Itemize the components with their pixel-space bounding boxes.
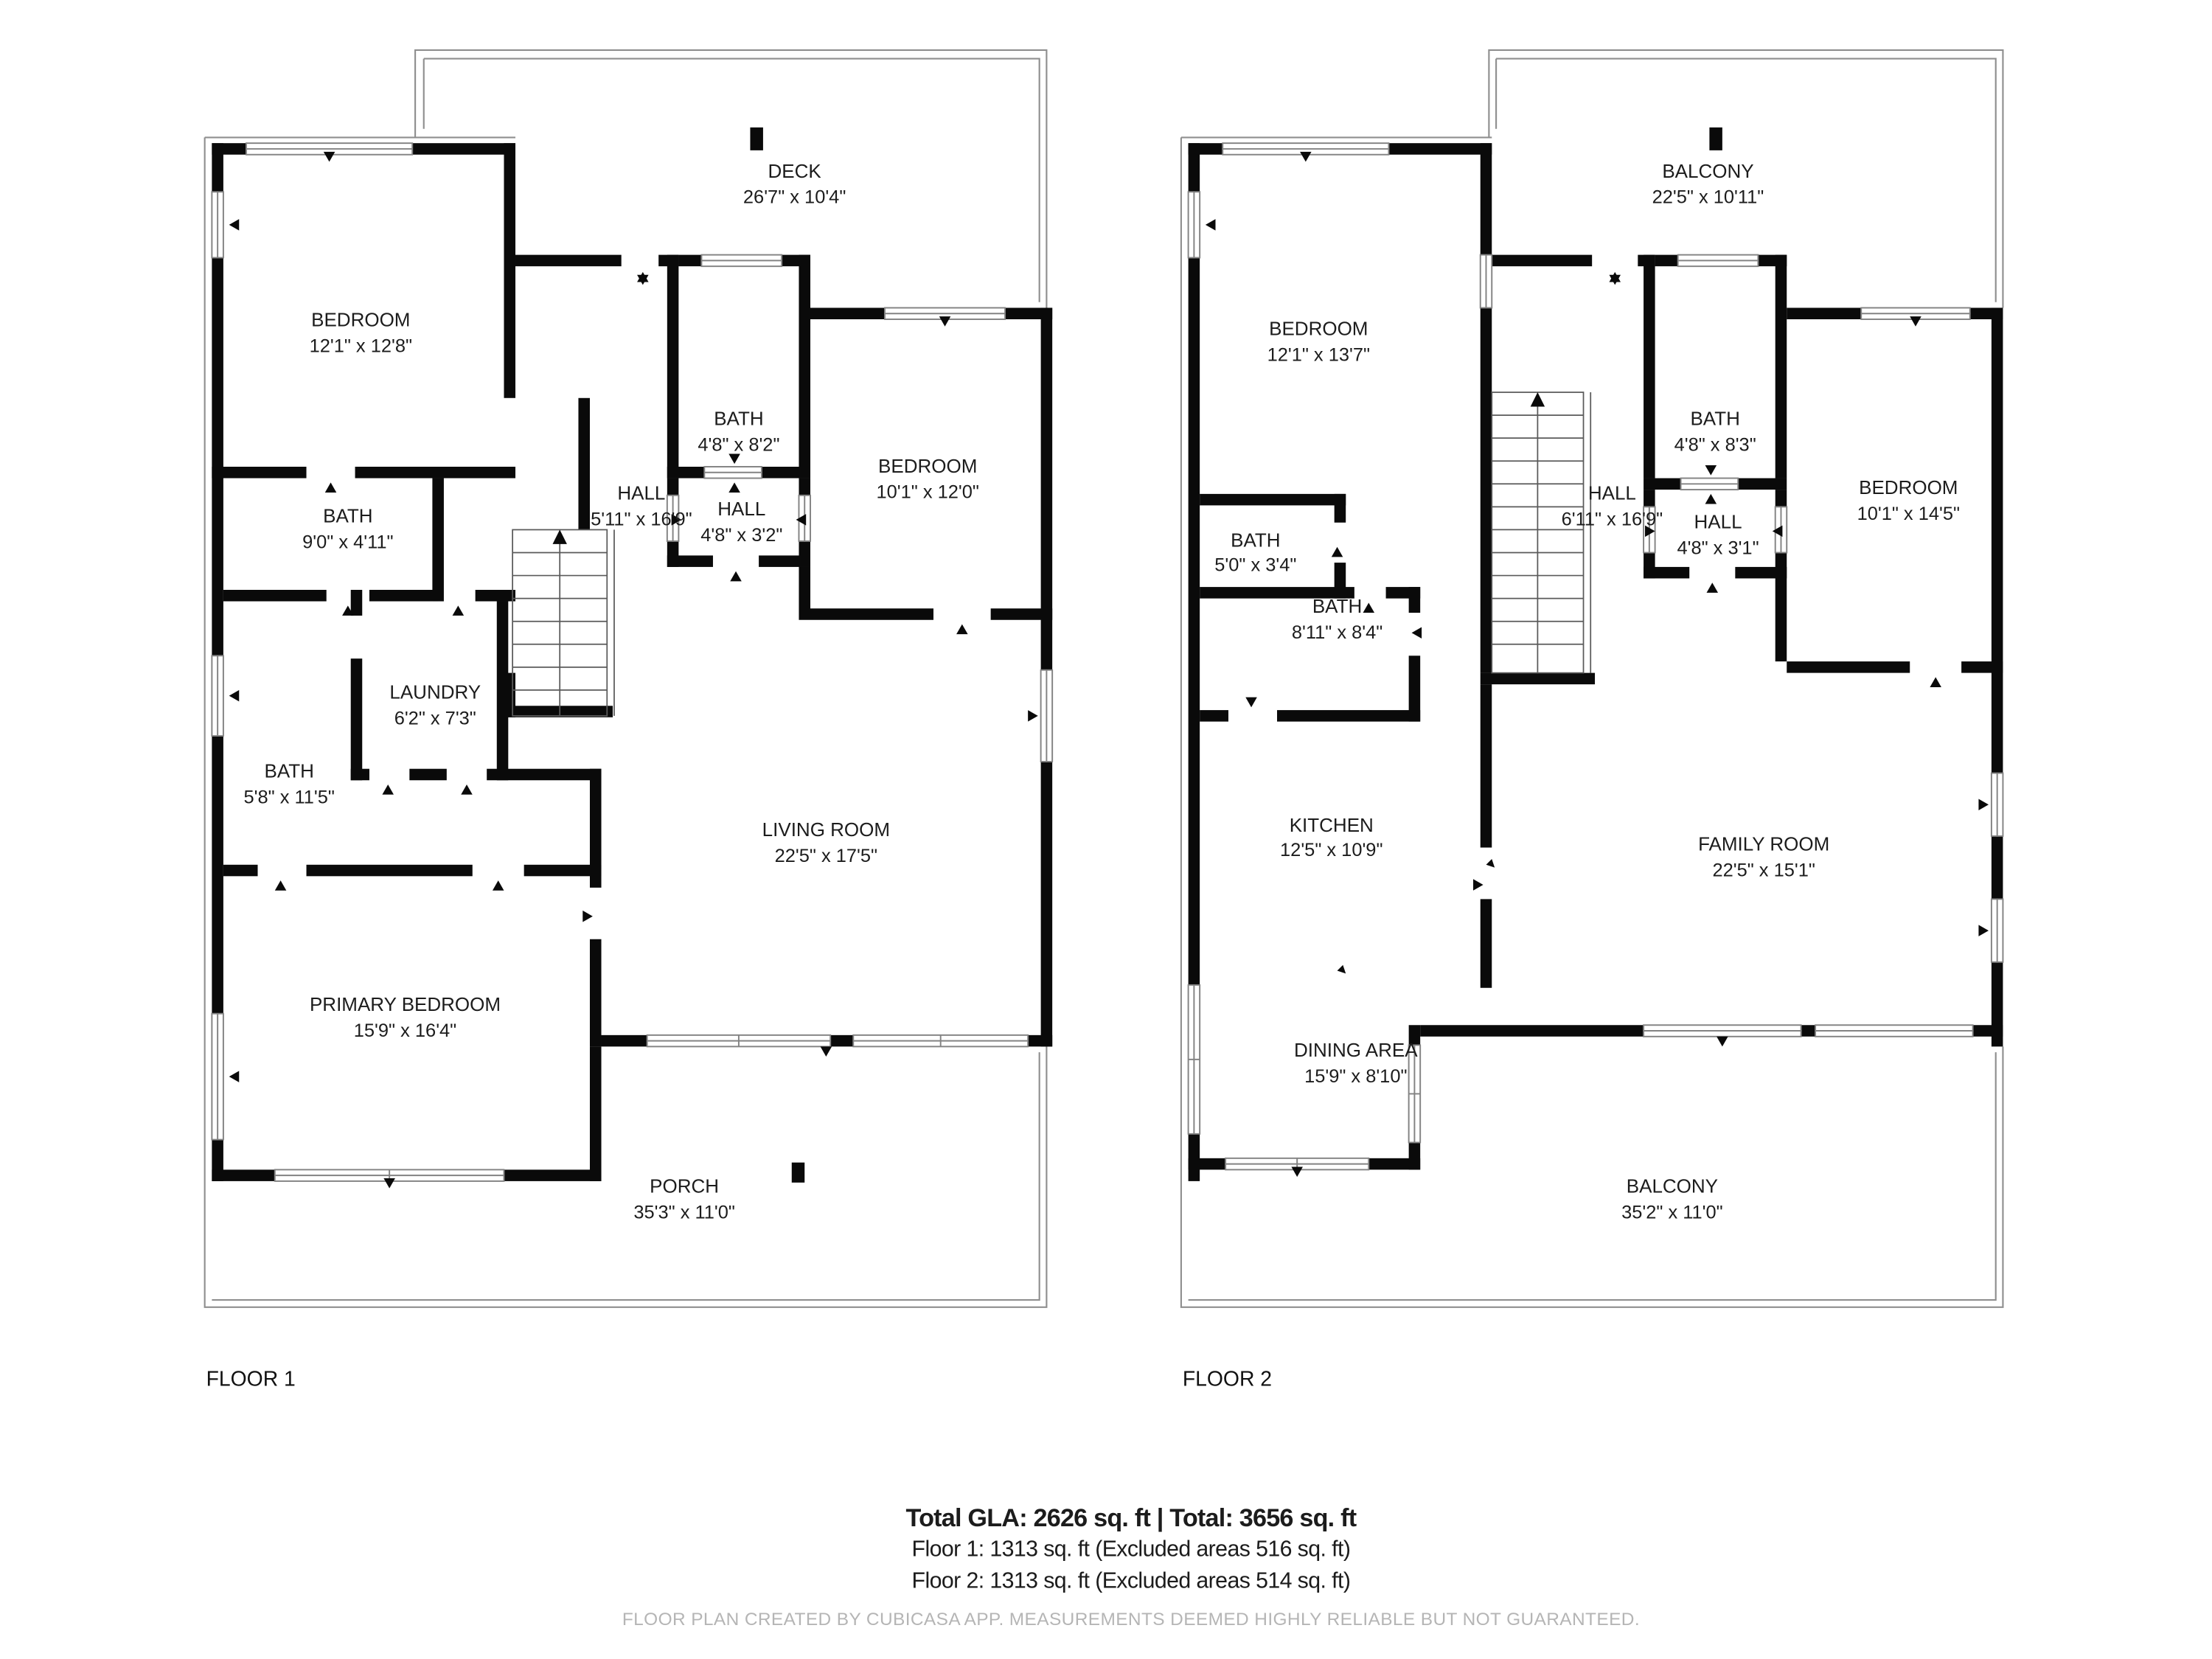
room-dims-living: 22'5" x 17'5" [775,846,877,866]
room-label-living: LIVING ROOM [762,818,890,841]
room-dims-deck: 26'7" x 10'4" [743,187,846,208]
room-label-primary: PRIMARY BEDROOM [310,993,501,1015]
room-dims-hall-main-f2: 6'11" x 16'9" [1562,509,1663,530]
room-dims-primary: 15'9" x 16'4" [354,1020,456,1041]
room-dims-bath50: 5'0" x 3'4" [1214,555,1296,576]
room-label-bedroom1: BEDROOM [311,309,410,331]
room-dims-laundry: 6'2" x 7'3" [394,709,476,729]
room-label-balcony-top: BALCONY [1662,160,1753,182]
room-label-bedroom1-f2: BEDROOM [1269,317,1368,339]
floor2-windows [1189,143,2003,1169]
floor1-stairs-icon [512,529,614,715]
room-label-hall-sm-f2: HALL [1694,510,1742,532]
room-label-bedroom2-f2: BEDROOM [1859,476,1958,498]
room-dims-porch: 35'3" x 11'0" [633,1202,735,1222]
floor2-label: FLOOR 2 [1183,1368,1272,1391]
room-label-family: FAMILY ROOM [1698,832,1829,855]
room-label-hall-sm: HALL [717,498,765,520]
room-label-bedroom2: BEDROOM [878,455,977,477]
disclaimer-text: FLOOR PLAN CREATED BY CUBICASA APP. MEAS… [0,1609,2212,1629]
floor2-area-line: Floor 2: 1313 sq. ft (Excluded areas 514… [0,1569,2212,1596]
room-dims-bedroom2-f2: 10'1" x 14'5" [1857,504,1960,524]
total-gla-line: Total GLA: 2626 sq. ft | Total: 3656 sq.… [0,1506,2212,1531]
room-dims-bath48: 4'8" x 8'2" [698,435,779,456]
floor-plan-canvas: DECK 26'7" x 10'4" BEDROOM 12'1" x 12'8"… [0,0,2212,1503]
floor1-walls [212,143,1052,1181]
floor2-stairs-icon [1492,392,1590,673]
room-dims-bedroom2: 10'1" x 12'0" [877,482,979,503]
room-label-bath9: BATH [323,505,372,527]
room-dims-balcony-top: 22'5" x 10'11" [1652,187,1764,208]
room-label-bath58: BATH [265,759,314,782]
room-dims-hall-sm: 4'8" x 3'2" [700,525,782,546]
porch-marker-icon [792,1163,804,1183]
room-label-hall-main-f2: HALL [1588,482,1636,504]
room-dims-kitchen: 12'5" x 10'9" [1280,840,1382,860]
deck-marker-icon [750,128,762,150]
room-dims-bedroom1: 12'1" x 12'8" [310,336,412,357]
room-label-kitchen: KITCHEN [1290,814,1374,836]
room-dims-hall-sm-f2: 4'8" x 3'1" [1677,538,1759,558]
floor1-plan: DECK 26'7" x 10'4" BEDROOM 12'1" x 12'8"… [205,50,1052,1391]
floor1-outline [205,50,1047,1307]
room-label-dining: DINING AREA [1294,1039,1418,1061]
room-label-bath48-f2: BATH [1690,408,1739,430]
room-dims-balcony-bot: 35'2" x 11'0" [1621,1202,1723,1222]
room-label-laundry: LAUNDRY [389,681,481,703]
room-label-porch: PORCH [650,1175,719,1197]
floor1-area-line: Floor 1: 1313 sq. ft (Excluded areas 516… [0,1537,2212,1564]
room-dims-family: 22'5" x 15'1" [1712,860,1815,880]
room-label-bath48: BATH [714,408,763,430]
room-dims-dining: 15'9" x 8'10" [1304,1066,1407,1087]
area-summary: Total GLA: 2626 sq. ft | Total: 3656 sq.… [0,1506,2212,1596]
room-label-bath50: BATH [1231,529,1280,552]
room-dims-bath811: 8'11" x 8'4" [1292,622,1382,643]
floor1-windows [212,143,1052,1181]
room-dims-hall-main: 5'11" x 16'9" [591,509,692,530]
room-label-balcony-bot: BALCONY [1627,1175,1718,1197]
room-dims-bath58: 5'8" x 11'5" [244,787,335,807]
room-dims-bath48-f2: 4'8" x 8'3" [1674,435,1756,456]
room-dims-bedroom1-f2: 12'1" x 13'7" [1267,344,1370,365]
room-label-hall-main: HALL [617,482,665,504]
floor1-label: FLOOR 1 [206,1368,296,1391]
room-dims-bath9: 9'0" x 4'11" [302,532,393,553]
room-label-deck: DECK [768,160,822,182]
balcony-marker-icon [1709,128,1722,150]
floor-plan-page: DECK 26'7" x 10'4" BEDROOM 12'1" x 12'8"… [0,0,2212,1659]
room-label-bath811: BATH [1312,595,1362,617]
floor2-plan: BALCONY 22'5" x 10'11" BEDROOM 12'1" x 1… [1181,50,2003,1391]
